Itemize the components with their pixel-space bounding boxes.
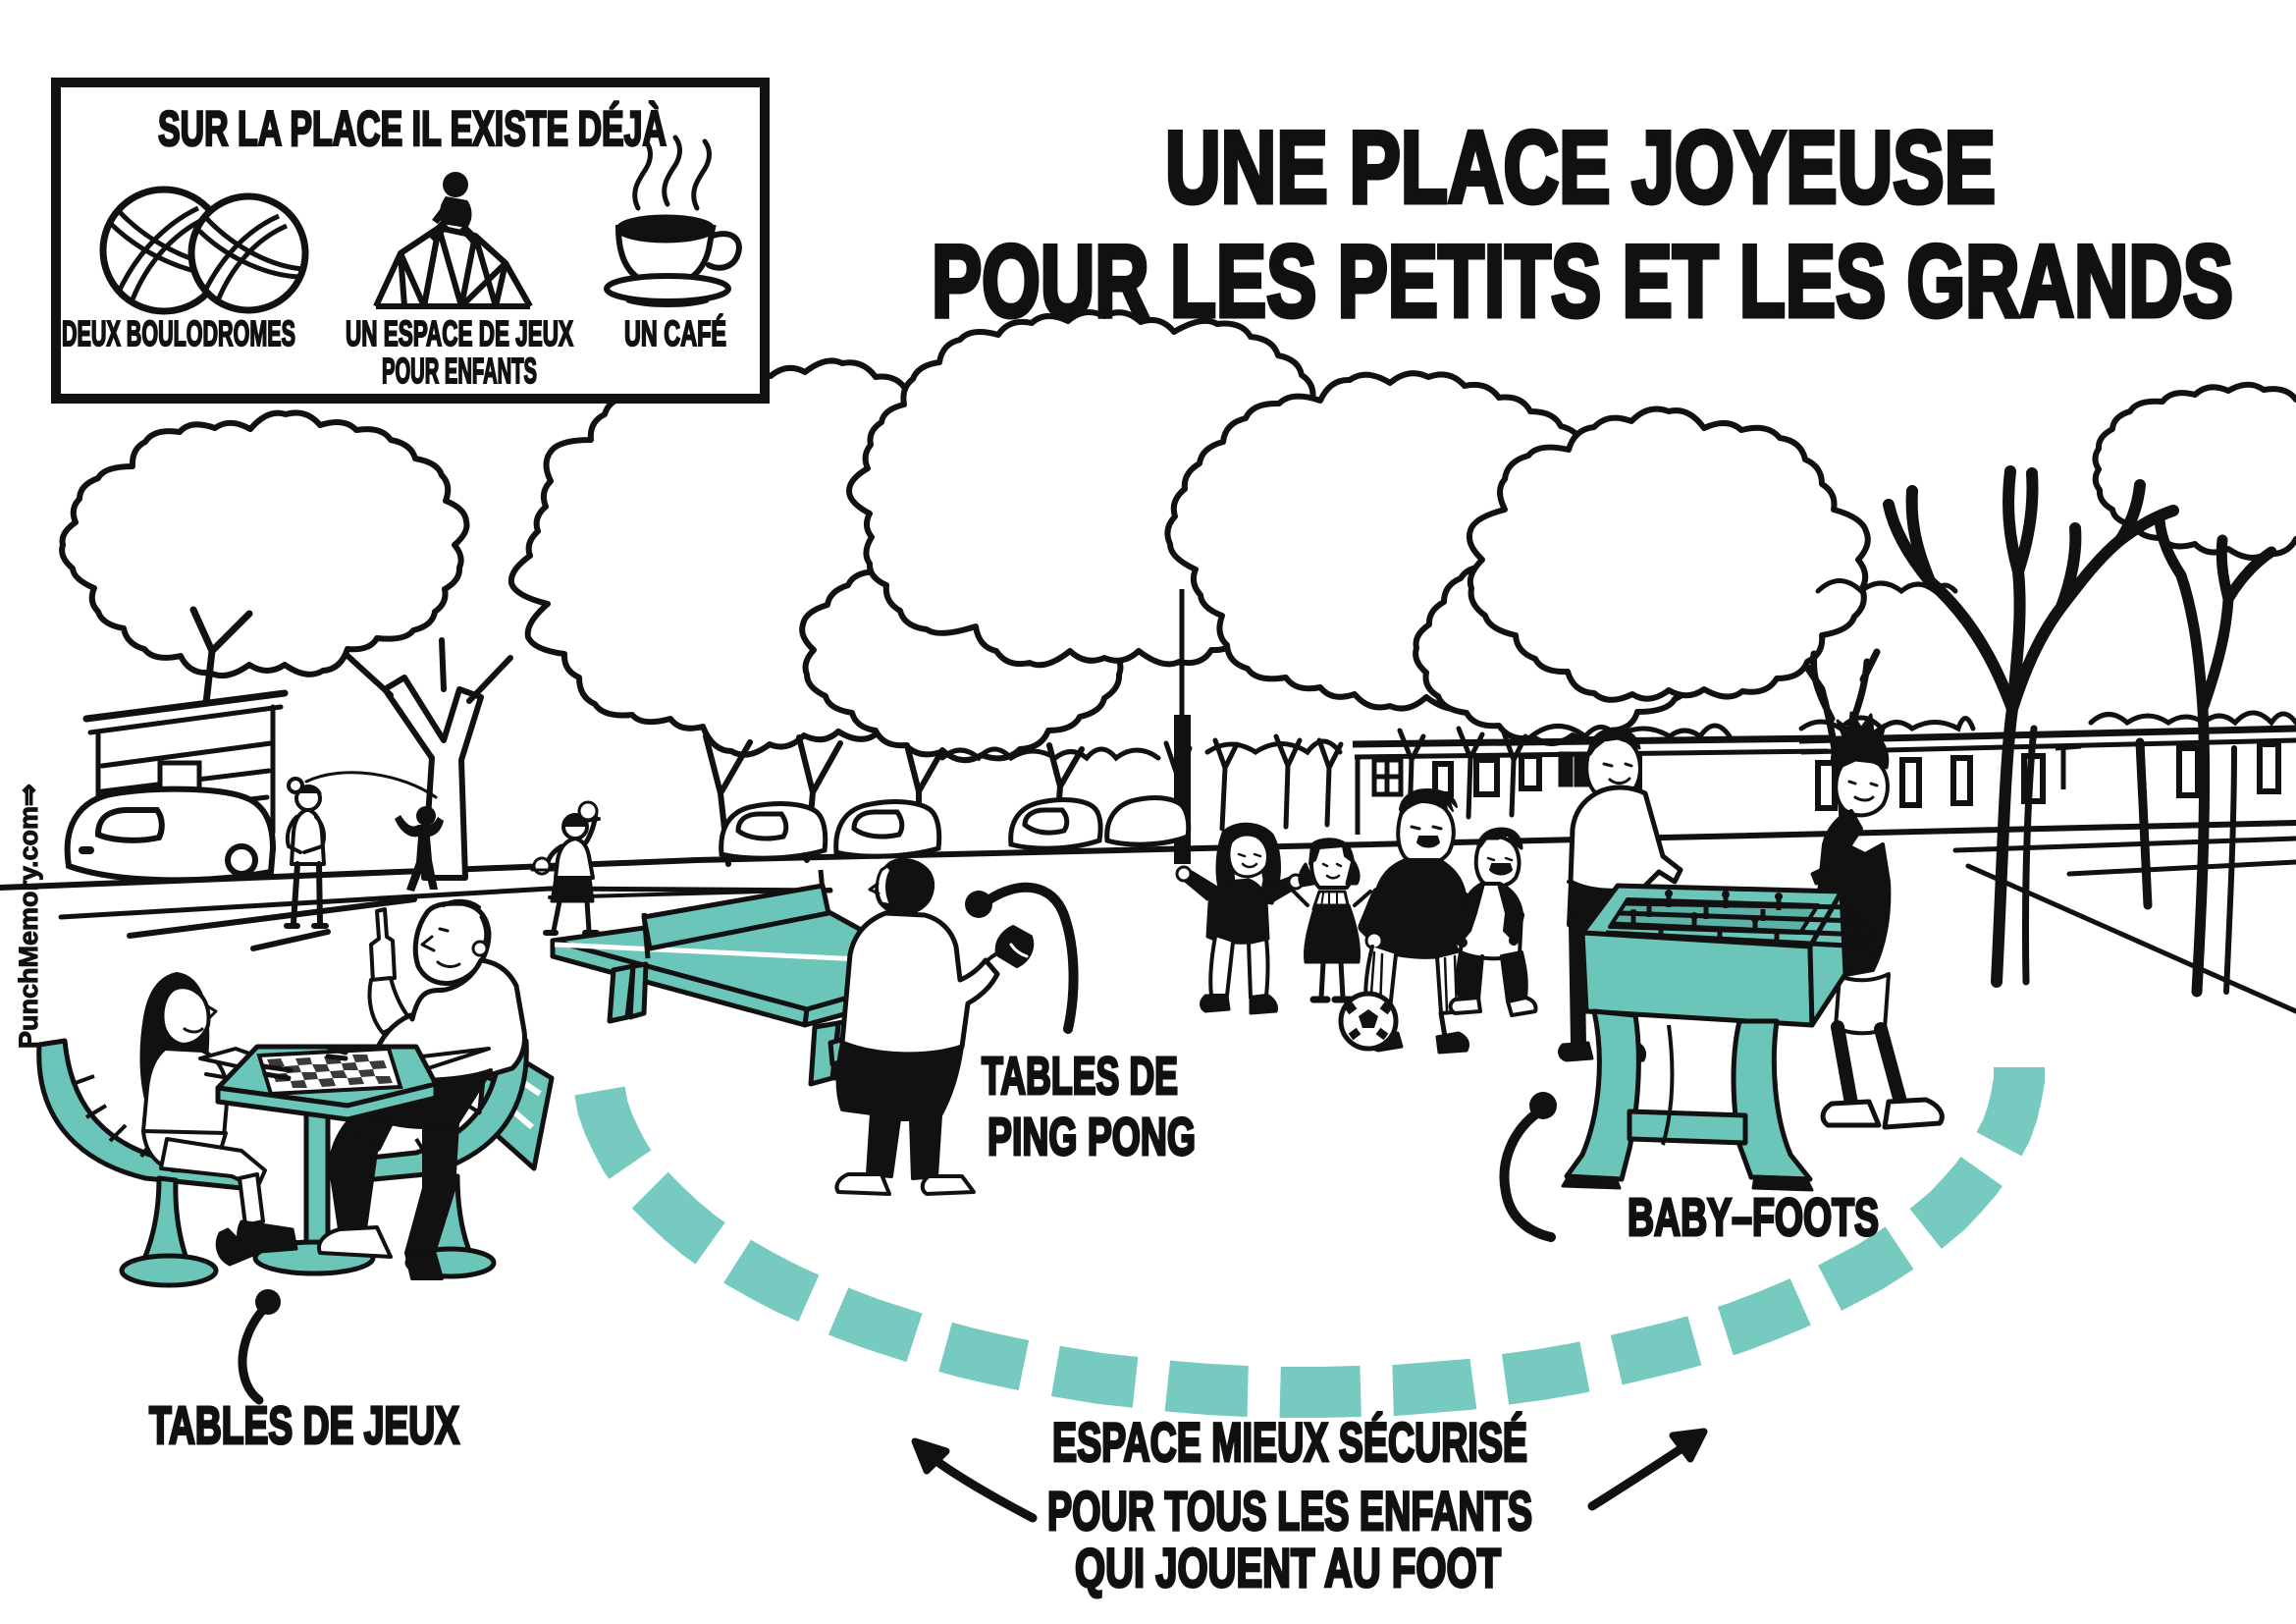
svg-text:SUR LA PLACE IL EXISTE DÉJÀ: SUR LA PLACE IL EXISTE DÉJÀ bbox=[158, 101, 667, 156]
svg-text:POUR TOUS LES ENFANTS: POUR TOUS LES ENFANTS bbox=[1047, 1480, 1532, 1542]
svg-text:PING PONG: PING PONG bbox=[988, 1108, 1196, 1166]
svg-text:POUR LES PETITS ET LES GRANDS: POUR LES PETITS ET LES GRANDS bbox=[932, 225, 2233, 339]
svg-text:POUR ENFANTS: POUR ENFANTS bbox=[382, 351, 537, 391]
svg-text:TABLES DE: TABLES DE bbox=[982, 1047, 1178, 1106]
svg-text:QUI JOUENT AU FOOT: QUI JOUENT AU FOOT bbox=[1075, 1537, 1501, 1598]
svg-text:UNE PLACE JOYEUSE: UNE PLACE JOYEUSE bbox=[1165, 111, 1996, 225]
svg-text:ESPACE MIEUX SÉCURISÉ: ESPACE MIEUX SÉCURISÉ bbox=[1052, 1411, 1527, 1473]
svg-text:UN ESPACE DE JEUX: UN ESPACE DE JEUX bbox=[346, 313, 573, 353]
svg-text:BABY–FOOTS: BABY–FOOTS bbox=[1628, 1188, 1879, 1247]
svg-text:PunchMemory.com⇒: PunchMemory.com⇒ bbox=[14, 784, 43, 1049]
svg-text:TABLES DE JEUX: TABLES DE JEUX bbox=[149, 1396, 459, 1455]
svg-text:UN CAFÉ: UN CAFÉ bbox=[624, 313, 726, 353]
svg-text:DEUX BOULODROMES: DEUX BOULODROMES bbox=[62, 313, 295, 353]
